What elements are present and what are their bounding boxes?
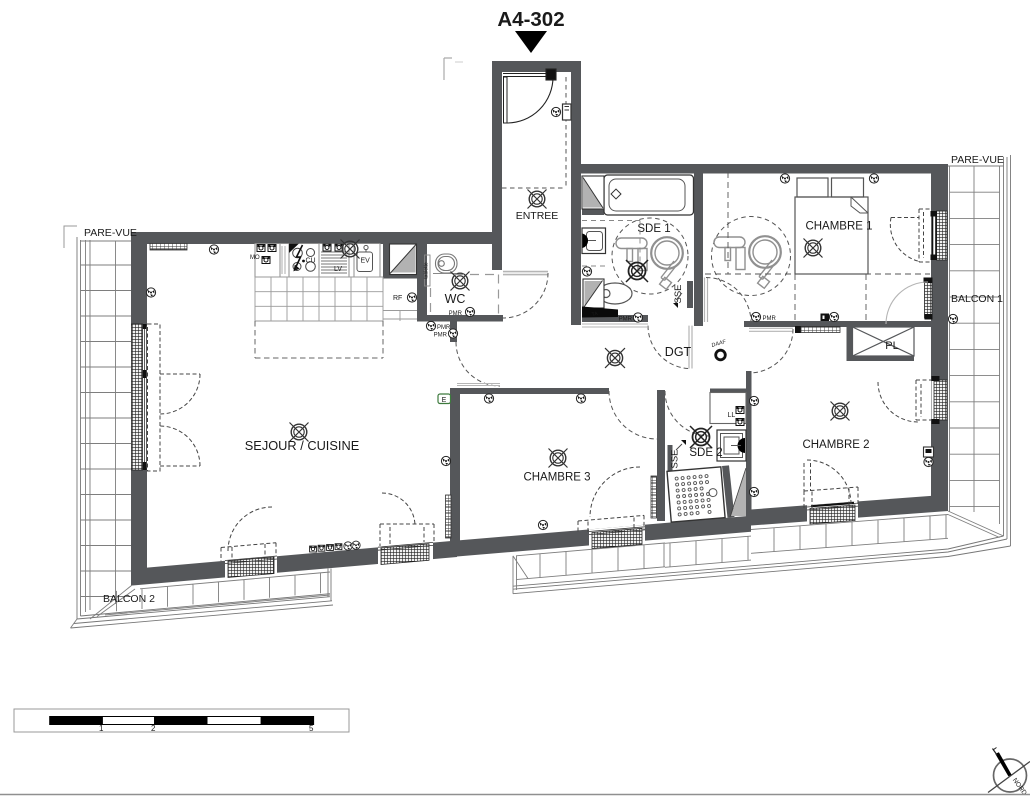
- svg-text:PARE-VUE: PARE-VUE: [951, 154, 1004, 166]
- svg-text:PMR: PMR: [763, 316, 777, 322]
- svg-text:E: E: [442, 397, 447, 404]
- svg-text:CU: CU: [306, 258, 316, 265]
- svg-text:5: 5: [309, 724, 314, 733]
- svg-text:A4-302: A4-302: [497, 8, 564, 31]
- svg-text:CHAMBRE 3: CHAMBRE 3: [523, 472, 590, 484]
- svg-text:tablette: tablette: [424, 262, 430, 279]
- svg-text:WC: WC: [445, 292, 466, 306]
- svg-text:PMR: PMR: [619, 317, 633, 323]
- svg-text:BALCON 1: BALCON 1: [951, 293, 1003, 305]
- svg-text:ENTREE: ENTREE: [516, 210, 559, 222]
- svg-text:MO: MO: [250, 255, 260, 261]
- svg-text:SSE: SSE: [670, 449, 681, 468]
- svg-text:EV: EV: [361, 258, 371, 265]
- svg-text:LV: LV: [334, 266, 342, 273]
- svg-text:SSE: SSE: [673, 284, 684, 303]
- svg-text:SDE 2: SDE 2: [689, 447, 722, 459]
- svg-text:SDE 1: SDE 1: [637, 223, 670, 235]
- svg-text:PMR: PMR: [449, 311, 463, 317]
- svg-text:CHAMBRE 2: CHAMBRE 2: [802, 439, 869, 451]
- svg-text:RF: RF: [393, 295, 402, 302]
- svg-text:CHAMBRE 1: CHAMBRE 1: [805, 221, 872, 233]
- svg-text:DGT: DGT: [665, 345, 692, 359]
- svg-text:2: 2: [151, 724, 156, 733]
- svg-text:PMR: PMR: [437, 325, 451, 331]
- svg-text:SEJOUR / CUISINE: SEJOUR / CUISINE: [245, 438, 359, 453]
- svg-text:LL: LL: [728, 412, 736, 419]
- svg-text:1: 1: [99, 724, 104, 733]
- svg-text:BALCON 2: BALCON 2: [103, 593, 155, 605]
- svg-text:PMR: PMR: [434, 333, 448, 339]
- svg-text:PL: PL: [885, 340, 898, 352]
- svg-text:PARE-VUE: PARE-VUE: [84, 227, 137, 239]
